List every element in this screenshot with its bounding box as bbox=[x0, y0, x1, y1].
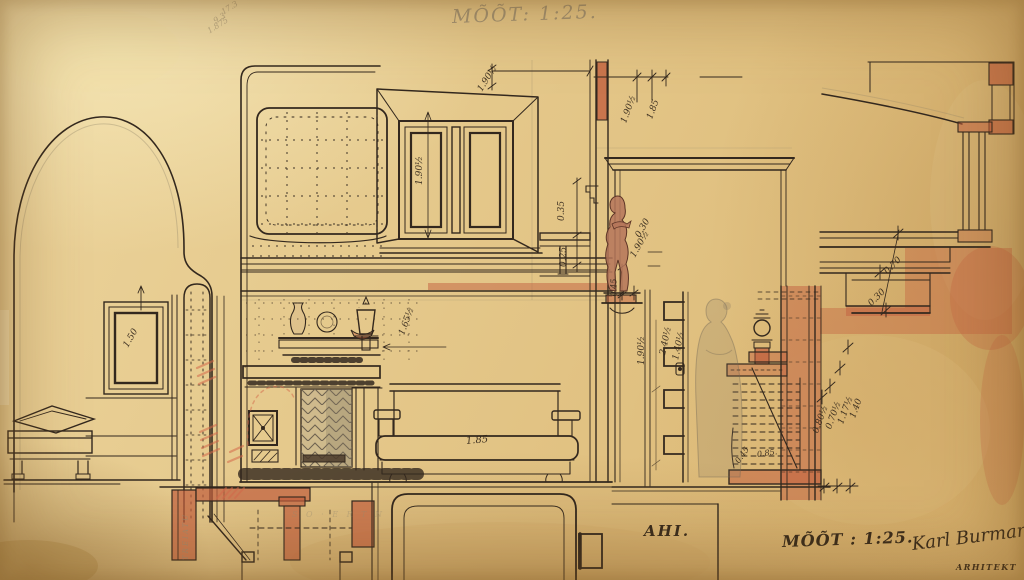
dim-label: 0.35 bbox=[557, 201, 567, 221]
dim-label: 0.45 bbox=[610, 279, 619, 297]
dim-label: 1.90½ bbox=[637, 336, 647, 365]
dim-label: 0.25 bbox=[559, 247, 569, 267]
plan-note-faint: S O · E R T N bbox=[292, 510, 385, 519]
drawing-sheet: MÕÕT: 1:25. 17.3 9.3 1.875 AHI. MÕÕT : 1… bbox=[0, 0, 1024, 580]
dim-label: 1.85 bbox=[466, 434, 489, 447]
dim-label: 1.90½ bbox=[415, 156, 425, 185]
stove-label: AHI. bbox=[644, 522, 690, 540]
drawing-canvas bbox=[0, 0, 1024, 580]
statue-figure bbox=[606, 196, 631, 291]
wall-tile-grid bbox=[244, 299, 420, 367]
architect-title: ARHITEKT bbox=[956, 562, 1017, 572]
plan-note-vertical: TREIATU bbox=[182, 513, 190, 560]
ghost-figure bbox=[696, 299, 742, 477]
